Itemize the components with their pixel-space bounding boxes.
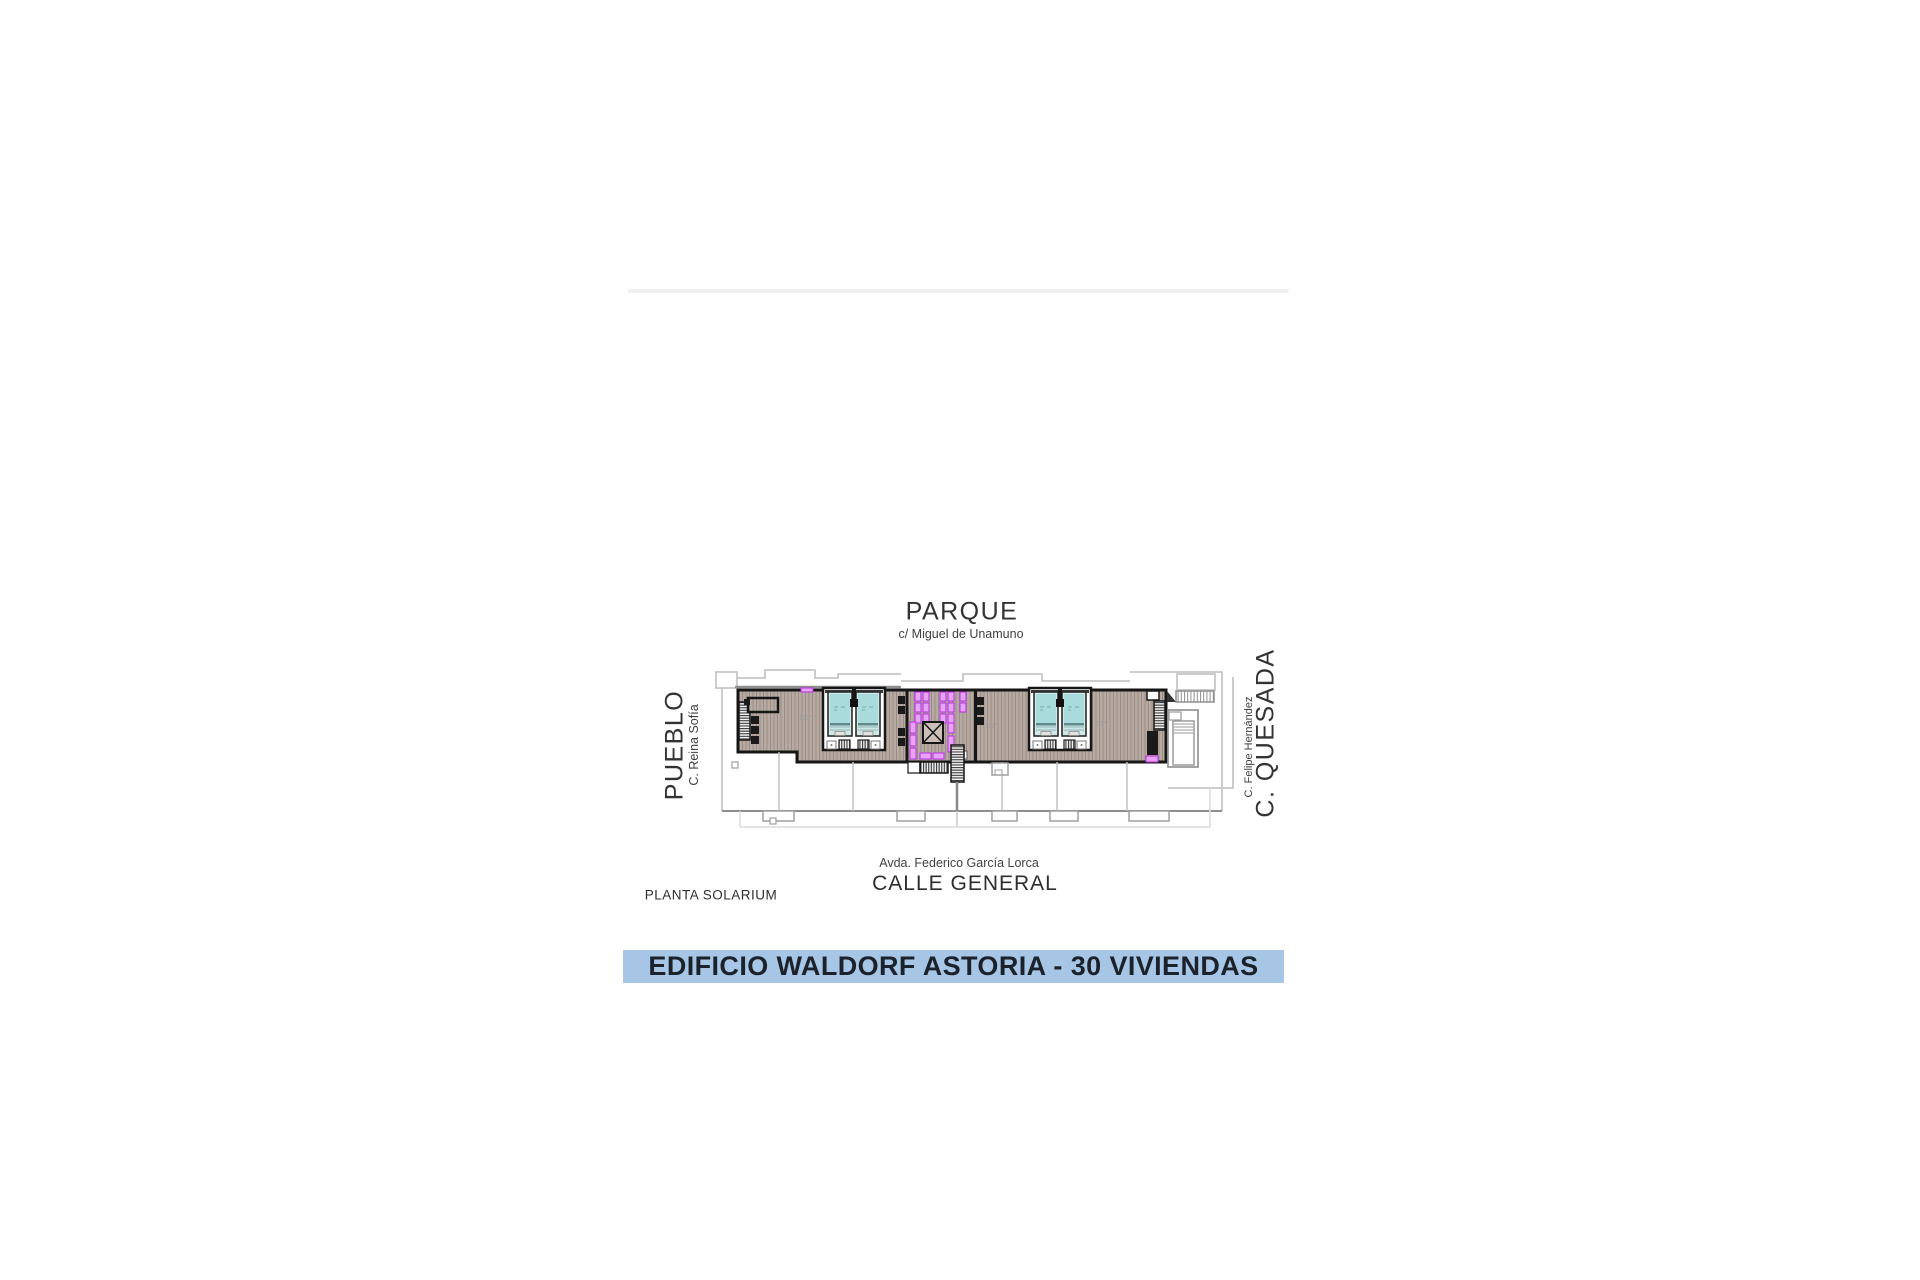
street-label-reina-sofia: C. Reina Sofía: [687, 704, 701, 785]
pool-pair-left: [823, 688, 885, 750]
title-banner: EDIFICIO WALDORF ASTORIA - 30 VIVIENDAS: [623, 950, 1284, 983]
building-title: EDIFICIO WALDORF ASTORIA - 30 VIVIENDAS: [648, 951, 1258, 982]
pool-pair-right: [1029, 688, 1091, 750]
page: PARQUE c/ Miguel de Unamuno PUEBLO C. Re…: [0, 0, 1920, 1280]
street-label-miguel-de-unamuno: c/ Miguel de Unamuno: [898, 627, 1023, 641]
elevator: [923, 722, 943, 743]
street-label-garcia-lorca: Avda. Federico García Lorca: [879, 856, 1039, 870]
plan-name-label: PLANTA SOLARIUM: [645, 888, 778, 903]
area-label-calle-general: CALLE GENERAL: [872, 872, 1058, 896]
area-label-quesada: C. QUESADA: [1252, 648, 1281, 817]
right-annex: [1167, 691, 1214, 767]
area-label-pueblo: PUEBLO: [661, 690, 690, 800]
area-label-parque: PARQUE: [906, 598, 1019, 627]
